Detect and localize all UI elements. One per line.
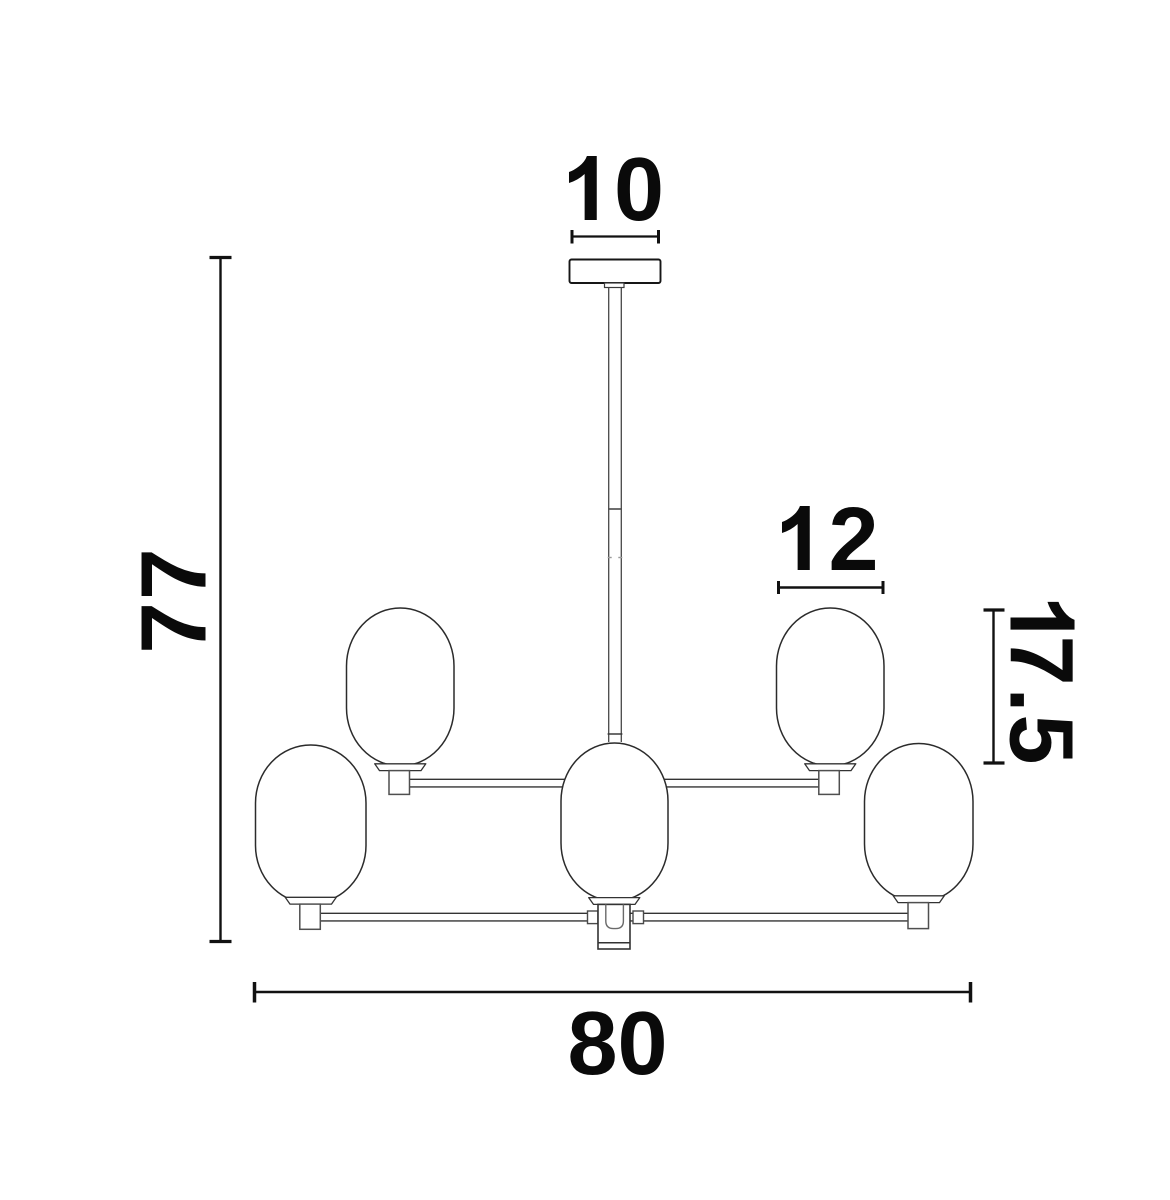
svg-text:77: 77 [122,546,226,653]
svg-text:2: 2 [828,490,878,590]
svg-text:80: 80 [567,994,667,1094]
svg-text:0: 0 [614,140,664,240]
svg-text:7.5: 7.5 [991,636,1091,767]
